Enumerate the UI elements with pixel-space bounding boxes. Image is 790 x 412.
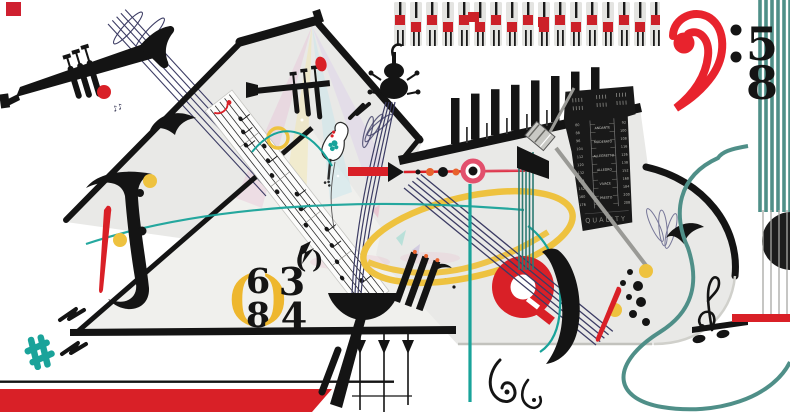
svg-text:ALLEGRO: ALLEGRO xyxy=(597,167,613,172)
svg-text:184: 184 xyxy=(623,184,630,188)
svg-text:VIVACE: VIVACE xyxy=(599,181,611,186)
svg-text:176: 176 xyxy=(579,203,586,207)
red-dot-accent xyxy=(97,85,111,99)
svg-text:96: 96 xyxy=(576,139,581,143)
svg-text:116: 116 xyxy=(621,145,628,149)
red-boat-bar xyxy=(0,389,332,412)
svg-text:120: 120 xyxy=(577,163,584,167)
svg-text:160: 160 xyxy=(579,195,586,199)
svg-text:138: 138 xyxy=(622,161,629,165)
svg-text:4: 4 xyxy=(281,294,307,339)
svg-text:88: 88 xyxy=(575,131,580,135)
guitar-soundhole xyxy=(762,212,790,270)
guitar-bridge xyxy=(732,314,790,322)
time-signature-5-8: 5 8 xyxy=(746,17,778,110)
svg-text:92: 92 xyxy=(622,121,627,125)
svg-text:8: 8 xyxy=(746,56,778,110)
svg-text:): ) xyxy=(312,245,323,274)
svg-text:108: 108 xyxy=(620,137,627,141)
trumpet-icon xyxy=(6,26,174,106)
keyboard-fader-strip xyxy=(392,2,660,47)
music-collage-illustration: ♪♪ xyxy=(0,0,790,412)
bottom-horizontal-line xyxy=(0,381,394,383)
bass-clef-icon xyxy=(673,14,742,108)
svg-text:104: 104 xyxy=(576,147,583,151)
svg-text:168: 168 xyxy=(622,177,629,181)
svg-text:200: 200 xyxy=(623,192,630,196)
svg-text:152: 152 xyxy=(622,169,629,173)
svg-text:80: 80 xyxy=(575,123,580,127)
arrow-spears xyxy=(352,333,414,412)
svg-text:112: 112 xyxy=(577,155,584,159)
tiny-notes-glyph: ♪♪ xyxy=(111,102,124,114)
sharp-icon xyxy=(21,332,58,372)
svg-text:100: 100 xyxy=(620,129,627,133)
svg-text:ANDANTE: ANDANTE xyxy=(594,125,610,130)
artwork-canvas: ♪♪ xyxy=(0,0,790,412)
svg-text:126: 126 xyxy=(621,153,628,157)
red-square-accent xyxy=(6,2,21,16)
svg-text:208: 208 xyxy=(624,200,631,204)
svg-text:PRESTO: PRESTO xyxy=(600,195,613,200)
